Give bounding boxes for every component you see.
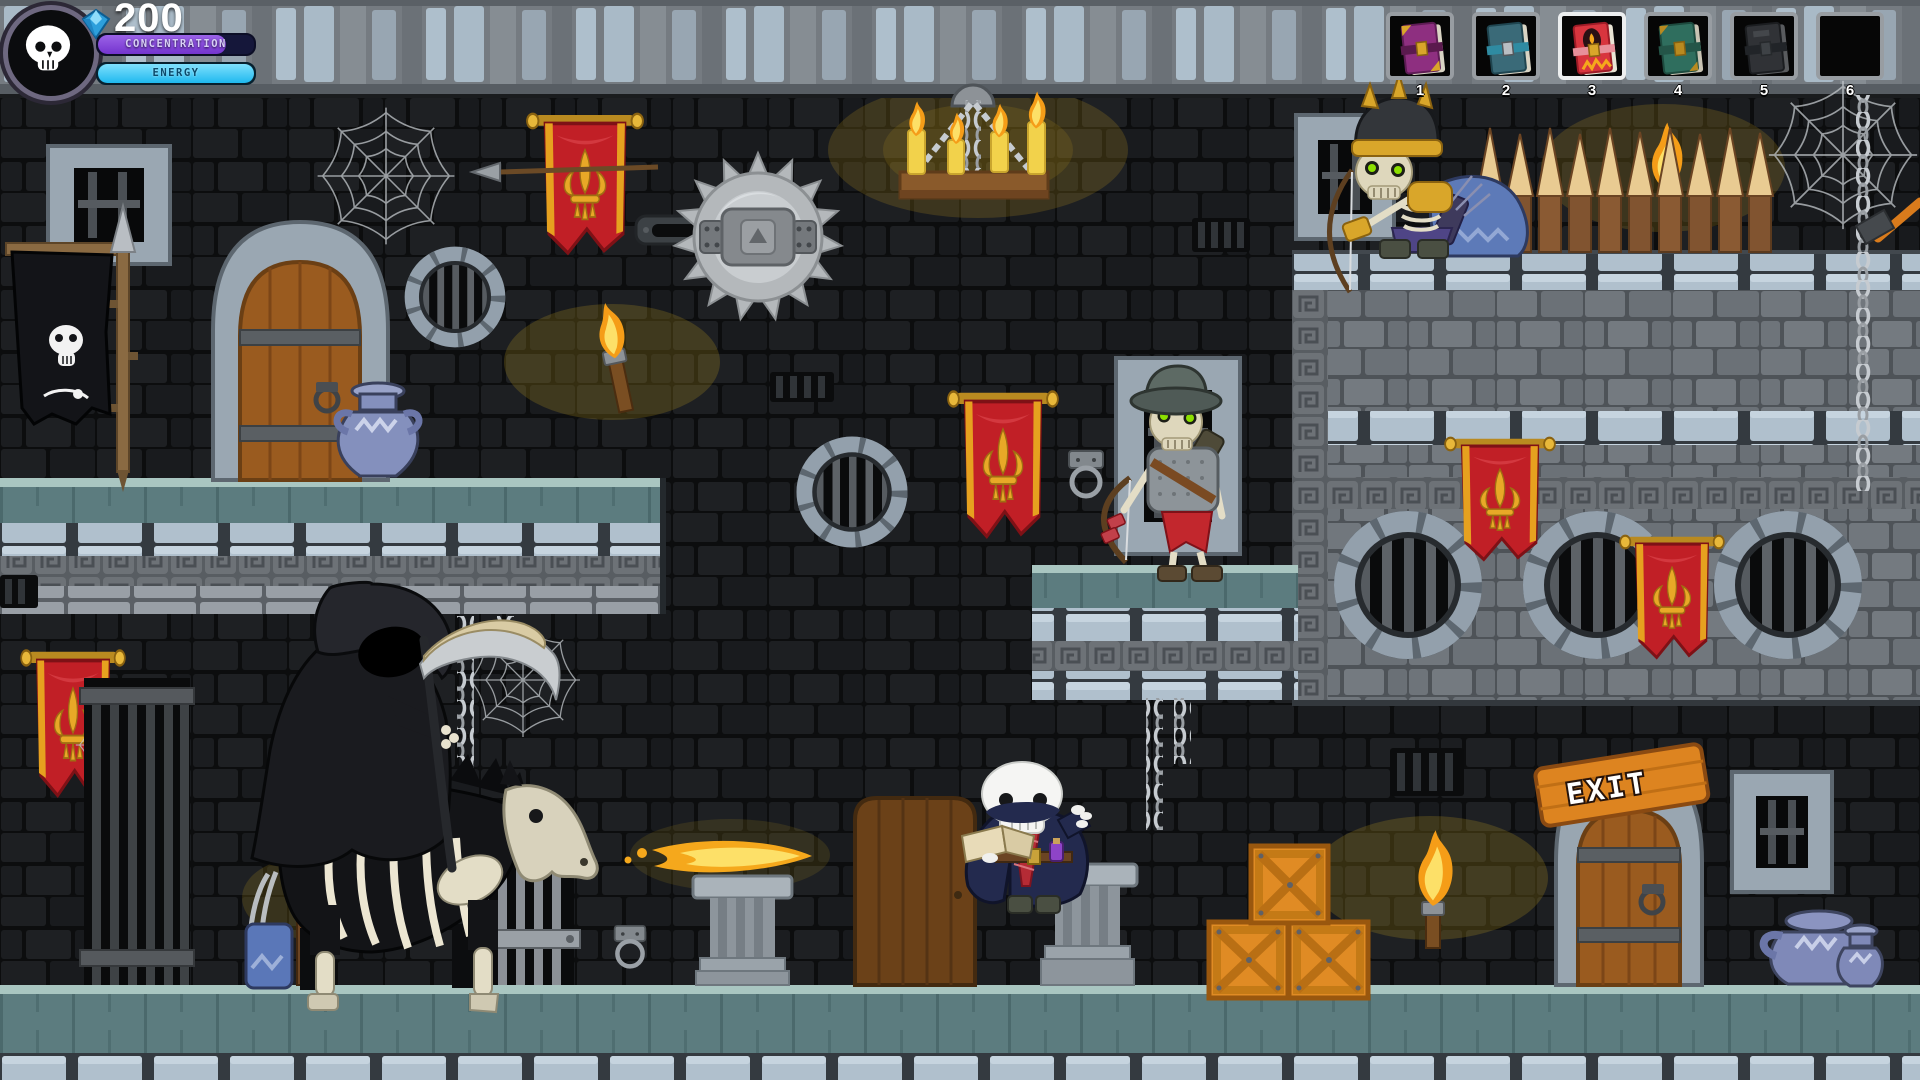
round-window [797, 437, 908, 548]
concentration-label: CONCENTRATION [98, 35, 254, 54]
red-flame-spellbook-icon [1569, 20, 1621, 80]
skull-icon [14, 16, 82, 84]
energy-label: ENERGY [98, 64, 254, 83]
barred-gate [80, 678, 194, 985]
teal-spellbook-icon [1483, 20, 1535, 80]
center-platform [1032, 565, 1298, 700]
slot-number: 1 [1390, 82, 1450, 99]
round-window [1714, 511, 1862, 659]
green-spellbook-icon [1655, 20, 1707, 80]
stone-tower [1292, 250, 1920, 706]
concentration-bar: CONCENTRATION [96, 33, 256, 56]
slot-number: 2 [1476, 82, 1536, 99]
inventory-bar: 1 2 3 4 [1386, 12, 1884, 80]
status-bars: CONCENTRATION ENERGY [96, 33, 256, 91]
inventory-slot-4[interactable]: 4 [1644, 12, 1712, 80]
slot-number: 3 [1562, 82, 1622, 99]
inventory-slot-5[interactable]: 5 [1730, 12, 1798, 80]
round-window [405, 247, 506, 348]
slot-number: 4 [1648, 82, 1708, 99]
round-window [1334, 511, 1482, 659]
inventory-slot-6-empty[interactable]: 6 [1816, 12, 1884, 80]
inventory-slot-1[interactable]: 1 [1386, 12, 1454, 80]
spider-web [318, 108, 455, 245]
floor [0, 985, 1920, 1080]
inventory-slot-3-selected[interactable]: 3 [1558, 12, 1626, 80]
spider-web [1769, 81, 1917, 229]
game-screen: EXIT [0, 0, 1920, 1080]
dark-spellbook-icon [1741, 20, 1793, 80]
slot-number: 5 [1734, 82, 1794, 99]
inventory-slot-2[interactable]: 2 [1472, 12, 1540, 80]
energy-bar: ENERGY [96, 62, 256, 85]
game-world: EXIT [0, 0, 1920, 1080]
slot-number: 6 [1820, 82, 1880, 99]
purple-spellbook-icon [1397, 20, 1449, 80]
wooden-door-center[interactable] [855, 798, 975, 985]
